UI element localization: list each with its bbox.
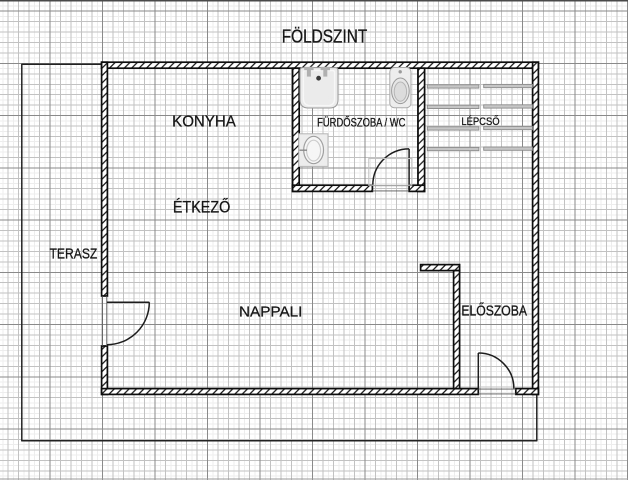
svg-text:FÖLDSZINT: FÖLDSZINT [282, 25, 368, 46]
svg-text:ÉTKEZŐ: ÉTKEZŐ [173, 197, 231, 216]
svg-text:LÉPCSŐ: LÉPCSŐ [461, 114, 499, 128]
svg-text:ELŐSZOBA: ELŐSZOBA [461, 302, 527, 319]
svg-text:TERASZ: TERASZ [49, 246, 97, 263]
svg-text:NAPPALI: NAPPALI [239, 304, 302, 321]
svg-text:FÜRDŐSZOBA / WC: FÜRDŐSZOBA / WC [317, 116, 406, 130]
svg-text:KONYHA: KONYHA [172, 114, 236, 131]
